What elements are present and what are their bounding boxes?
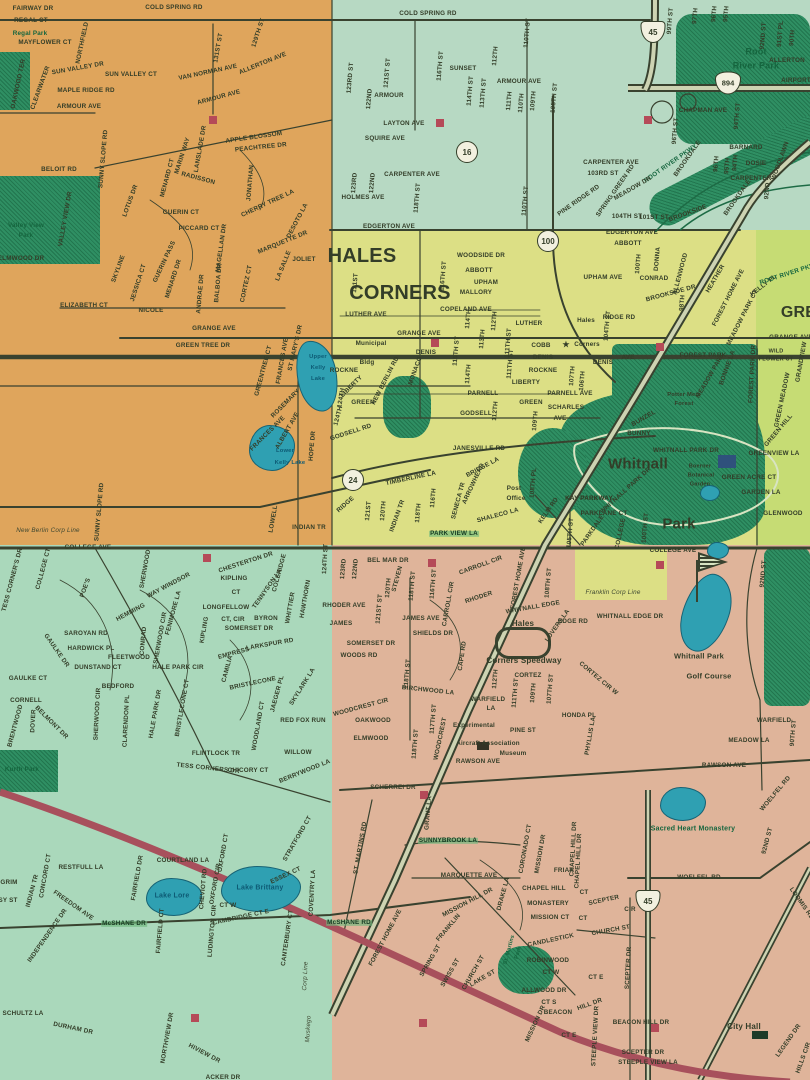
map-label: COLD SPRING RD — [399, 11, 456, 17]
map-label: KIPLING — [221, 576, 248, 582]
map-label: McSHANE RD — [326, 920, 372, 926]
map-label: BYRON — [254, 616, 278, 622]
map-label: GREEN TREE DR — [176, 343, 230, 349]
map-label: WARFIELD — [757, 718, 791, 724]
map-label: RAWSON AVE — [456, 759, 500, 765]
map-label: Botanical — [688, 473, 715, 479]
map-label: CT E — [561, 1033, 576, 1039]
map-label: LUTHER AVE — [345, 312, 387, 318]
map-label: GREEN — [351, 400, 374, 406]
map-label: AVE — [621, 355, 634, 361]
map-label: GODSELL — [460, 411, 492, 417]
map-label: Hales — [577, 318, 595, 324]
map-label: RED FOX RUN — [280, 718, 326, 724]
map-label: BEDFORD — [102, 684, 135, 690]
map-label: GRIM — [0, 880, 17, 886]
map-label: DUNSTAND CT — [74, 665, 121, 671]
map-label: CARPENTER AVE — [384, 172, 440, 178]
map-label: ELMWOOD — [354, 736, 389, 742]
map-label: LAYTON AVE — [383, 121, 424, 127]
map-label: Post — [507, 486, 521, 492]
map-label: GREEN — [519, 400, 542, 406]
map-label: COBB — [531, 343, 550, 349]
map-label: AIRPORT — [781, 78, 810, 84]
map-label: PICCARD CT — [179, 226, 220, 232]
map-label: BEACON — [544, 1010, 573, 1016]
map-label: WOODSIDE DR — [457, 253, 505, 259]
map-label: BELOIT RD — [41, 167, 77, 173]
map-label: SQUIRE AVE — [365, 136, 405, 142]
map-label: Lake Brittany — [237, 885, 284, 892]
map-label: ALLERTON — [769, 58, 805, 64]
map-label: GREEN ACRE CT — [722, 475, 777, 481]
map-label: UPHAM AVE — [584, 275, 623, 281]
map-label: DOSIE — [746, 161, 767, 167]
map-label: Whitnall Park — [674, 652, 724, 660]
speedway-oval — [495, 627, 551, 659]
map-label: CT — [580, 890, 589, 896]
map-label: BUNNY — [627, 431, 650, 437]
golf-flag-icon — [698, 552, 728, 572]
map-label: ARMOUR AVE — [57, 104, 101, 110]
map-label: MARQUETTE AVE — [441, 873, 497, 879]
route-shield-24: 24 — [342, 469, 364, 491]
map-label: RAWSON AVE — [702, 763, 746, 769]
map-label: Franklin Corp Line — [585, 590, 640, 596]
map-label: ALLWOOD DR — [521, 988, 566, 994]
map-red-square-marker — [436, 119, 444, 127]
map-label: SCHARLES — [548, 405, 584, 411]
map-label: COLLEGE AVE — [65, 545, 112, 551]
map-label: NICOLE — [139, 308, 164, 314]
map-label: ACKER DR — [206, 1075, 241, 1080]
map-label: Garden — [690, 482, 710, 488]
map-label: Kelly — [311, 366, 326, 372]
map-label: CT W — [220, 903, 237, 909]
map-label: Hales — [512, 620, 534, 628]
map-label: Boerner — [689, 464, 712, 470]
map-label: City Hall — [727, 1023, 761, 1031]
map-label: 103RD ST — [588, 171, 619, 177]
map-red-square-marker — [656, 561, 664, 569]
map-red-square-marker — [428, 559, 436, 567]
map-label: PARNELL — [468, 391, 499, 397]
map-label: SUNNYBROOK LA — [418, 838, 478, 844]
map-label: SUN VALLEY CT — [105, 72, 157, 78]
route-shield-100: 100 — [537, 230, 559, 252]
map-label: SHIELDS DR — [413, 631, 453, 637]
map-label: CHAPEL HILL — [522, 886, 566, 892]
map-label: COLD SPRING RD — [145, 5, 202, 11]
map-label: McSHANE DR — [101, 921, 147, 927]
map-label: Potter Mem — [667, 393, 701, 399]
map-label: GUERIN CT — [163, 210, 199, 216]
map-label: GREENVIEW LA — [748, 451, 799, 457]
map-label: ELMWOOD DR — [0, 256, 44, 262]
map-label: FAIRWAY DR — [13, 6, 54, 12]
map-label: WOELFEL RD — [677, 875, 721, 881]
map-label: 101ST ST — [639, 215, 669, 221]
map-label: HALES — [328, 246, 397, 266]
map-label: ELIZABETH CT — [60, 303, 108, 309]
map-red-square-marker — [644, 116, 652, 124]
map-label: PARNELL AVE — [547, 391, 592, 397]
map-label: Valley View — [8, 223, 44, 229]
map-label: CT E — [588, 975, 603, 981]
map-label: 104TH ST — [612, 214, 642, 220]
map-label: JANESVILLE RD — [453, 446, 505, 452]
map-label: SY ST — [0, 898, 18, 904]
map-label: WARFIELD — [471, 697, 505, 703]
map-label: EDGERTON AVE — [363, 224, 415, 230]
map-label: Lower — [276, 449, 294, 455]
map-label: COURTLAND LA — [157, 858, 209, 864]
map-label: Park — [19, 233, 33, 239]
map-label: STEEPLE VIEW LA — [618, 1060, 678, 1066]
map-label: WHITNALL PARK DR — [653, 448, 719, 454]
map-label: JAMES AVE — [402, 616, 440, 622]
street-map-canvas: FAIRWAY DRREGAL CTRegal ParkMAYFLOWER CT… — [0, 0, 810, 1080]
map-label: AVE — [553, 416, 566, 422]
map-label: CT — [232, 590, 241, 596]
map-label: SOMERSET DR — [225, 626, 273, 632]
map-label: GRANGE AVE — [397, 331, 441, 337]
map-label: SOMERSET DR — [347, 641, 395, 647]
boerner-garden-building — [718, 455, 736, 468]
map-label: MEADOW LA — [728, 738, 769, 744]
map-label: JAMES — [330, 621, 353, 627]
map-label: Kurth Park — [5, 767, 39, 773]
map-label: Whitnall — [608, 457, 668, 472]
map-label: Lake — [311, 377, 325, 383]
map-label: HARDWICK PL — [68, 646, 115, 652]
map-label: UPHAM — [474, 280, 498, 286]
map-label: Museum — [500, 751, 527, 757]
map-label: MISSION CT — [531, 915, 570, 921]
map-label: LONGFELLOW — [203, 605, 250, 611]
map-red-square-marker — [191, 1014, 199, 1022]
map-label: MALLORY — [460, 290, 492, 296]
map-label: BARNARD — [729, 145, 762, 151]
map-label: Park — [662, 517, 695, 532]
map-red-square-marker — [431, 339, 439, 347]
map-label: MAYFLOWER CT — [18, 40, 71, 46]
map-label: EDGE RD — [558, 619, 588, 625]
map-label: WILLOW — [284, 750, 311, 756]
map-label: DENIS — [533, 355, 553, 361]
map-label: HALE PARK CIR — [152, 665, 203, 671]
map-label: SCHERREI DR — [370, 785, 416, 791]
map-label: WHITNALL EDGE DR — [597, 614, 663, 620]
map-label: JOLIET — [292, 257, 315, 263]
map-label: CT — [579, 916, 588, 922]
map-red-square-marker — [656, 343, 664, 351]
map-label: GRANGE AVE — [192, 326, 236, 332]
map-label: RHODER AVE — [322, 603, 365, 609]
map-label: WOODS RD — [341, 653, 378, 659]
map-red-square-marker — [203, 554, 211, 562]
map-label: RESTFULL LA — [58, 865, 103, 871]
map-label: GARDEN LA — [741, 490, 780, 496]
map-label: New Berlin Corp Line — [16, 528, 80, 534]
map-label: GLENWOOD — [763, 511, 802, 517]
map-label: LIBERTY — [512, 380, 540, 386]
map-label: CIR — [624, 907, 635, 913]
map-label: Corners — [574, 342, 600, 348]
map-label: INDIAN TR — [292, 525, 326, 531]
city-hall-building — [752, 1031, 768, 1039]
map-label: HOLMES AVE — [342, 195, 385, 201]
map-label: FLOWER CT — [759, 357, 794, 363]
map-label: GRANGE AVE — [769, 335, 810, 341]
map-label: COLLEGE AVE — [650, 548, 697, 554]
map-red-square-marker — [419, 1019, 427, 1027]
map-label: CORNELL — [10, 698, 42, 704]
map-label: ARMOUR — [374, 93, 404, 99]
map-red-square-marker — [209, 116, 217, 124]
map-label: WILD — [769, 349, 784, 355]
map-label: CONRAD — [640, 276, 669, 282]
map-label: Experimental — [453, 723, 495, 729]
map-label: Kelly Lake — [275, 461, 306, 467]
map-label: CHAPMAN AVE — [679, 108, 727, 114]
map-label: Aircraft Association — [456, 741, 520, 747]
map-label: Office — [506, 496, 525, 502]
map-label: ROCKNE — [330, 368, 359, 374]
map-label: Corners Speedway — [486, 657, 561, 665]
map-label: PINE ST — [510, 728, 536, 734]
map-label: Forest — [675, 402, 694, 408]
map-label: FLEETWOOD — [108, 655, 150, 661]
map-label: CT, CIR — [221, 617, 244, 623]
map-label: SAROYAN RD — [64, 631, 108, 637]
red-highway — [0, 792, 790, 1080]
map-label: ROBINWOOD — [527, 958, 569, 964]
map-label: BEL MAR DR — [367, 558, 408, 564]
map-label: Municipal — [356, 341, 387, 347]
map-label: OAKWOOD — [355, 718, 391, 724]
route-shield-16: 16 — [456, 141, 478, 163]
map-label: Lake Lore — [155, 893, 190, 900]
map-label: Upper — [309, 355, 327, 361]
map-label: EDGERTON AVE — [606, 230, 658, 236]
map-label: SCHULTZ LA — [2, 1011, 43, 1017]
map-label: ABBOTT — [465, 268, 492, 274]
map-label: Regal Park — [13, 31, 48, 37]
map-label: ★ — [562, 341, 569, 349]
map-label: FLINTLOCK TR — [192, 751, 240, 757]
map-label: SUNSET — [450, 66, 477, 72]
map-label: REGAL CT — [14, 18, 48, 24]
map-label: CORNERS — [349, 283, 450, 303]
map-label: PARK VIEW LA — [429, 531, 479, 537]
map-label: ROCKNE — [529, 368, 558, 374]
map-label: ABBOTT — [614, 241, 641, 247]
map-label: Golf Course — [686, 672, 731, 680]
map-label: LUTHER — [516, 321, 543, 327]
map-label: FRIAR — [554, 868, 574, 874]
map-label: Bldg — [360, 360, 375, 366]
map-label: DENIS — [593, 360, 613, 366]
map-label: MAPLE RIDGE RD — [57, 88, 114, 94]
map-label: Sacred Heart Monastery — [651, 826, 736, 833]
map-label: CT W — [543, 970, 560, 976]
map-label: SCEPTER DR — [622, 1050, 665, 1056]
map-label: GAULKE CT — [9, 676, 48, 682]
map-label: KAY PARKWAY — [565, 496, 613, 502]
map-label: ARMOUR AVE — [497, 79, 541, 85]
map-label: BEACON HILL DR — [613, 1020, 670, 1026]
map-label: GREENDALE — [781, 305, 810, 321]
map-label: MONASTERY — [527, 901, 569, 907]
map-label: LA — [487, 706, 496, 712]
